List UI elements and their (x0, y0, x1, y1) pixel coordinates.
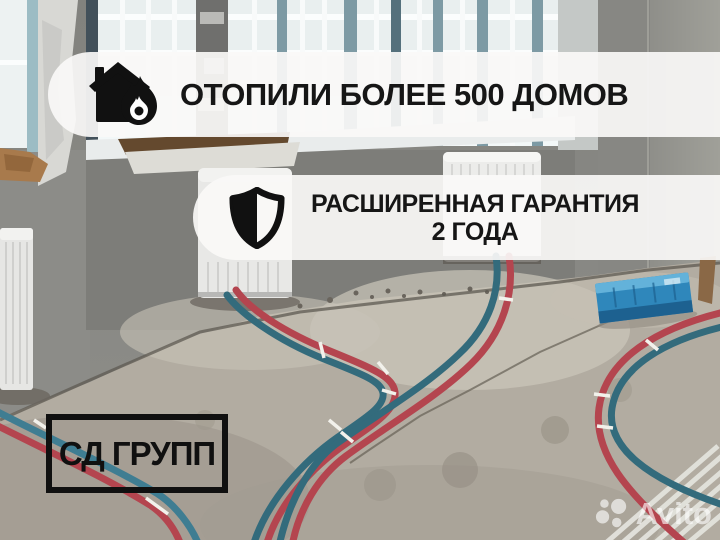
avito-watermark-text: Avito (636, 496, 712, 532)
avito-watermark: Avito (595, 496, 712, 532)
avito-logo-icon (595, 497, 629, 531)
ad-image: ОТОПИЛИ БОЛЕЕ 500 ДОМОВ РАСШИРЕННАЯ ГАРА… (0, 0, 720, 540)
warranty-banner: РАСШИРЕННАЯ ГАРАНТИЯ 2 ГОДА (193, 175, 720, 260)
warranty-line2: 2 ГОДА (311, 218, 639, 246)
house-flame-icon (88, 62, 160, 128)
warranty-line1: РАСШИРЕННАЯ ГАРАНТИЯ (311, 190, 639, 218)
shield-icon (229, 187, 285, 249)
heated-homes-banner: ОТОПИЛИ БОЛЕЕ 500 ДОМОВ (48, 52, 720, 137)
heated-homes-text: ОТОПИЛИ БОЛЕЕ 500 ДОМОВ (180, 77, 628, 113)
brand-box: СД ГРУПП (46, 414, 228, 493)
brand-name: СД ГРУПП (59, 435, 215, 473)
warranty-text: РАСШИРЕННАЯ ГАРАНТИЯ 2 ГОДА (311, 190, 639, 246)
